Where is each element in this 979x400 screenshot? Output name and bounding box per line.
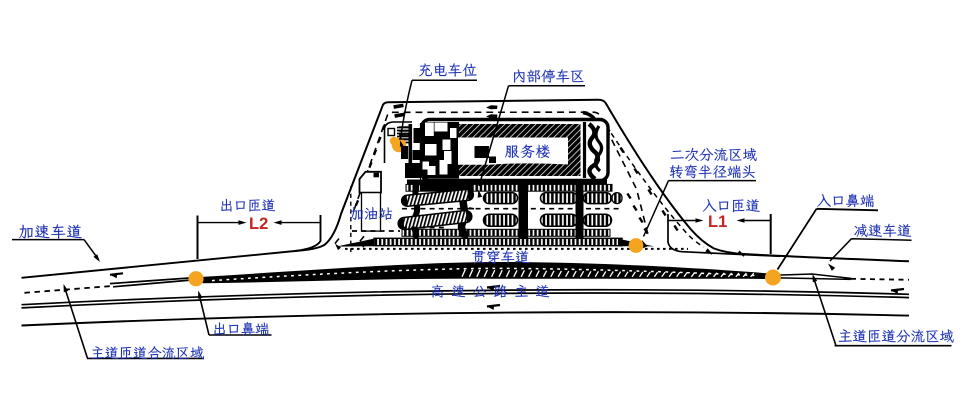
svg-text:L2: L2 xyxy=(249,215,268,233)
svg-text:L1: L1 xyxy=(708,213,727,231)
